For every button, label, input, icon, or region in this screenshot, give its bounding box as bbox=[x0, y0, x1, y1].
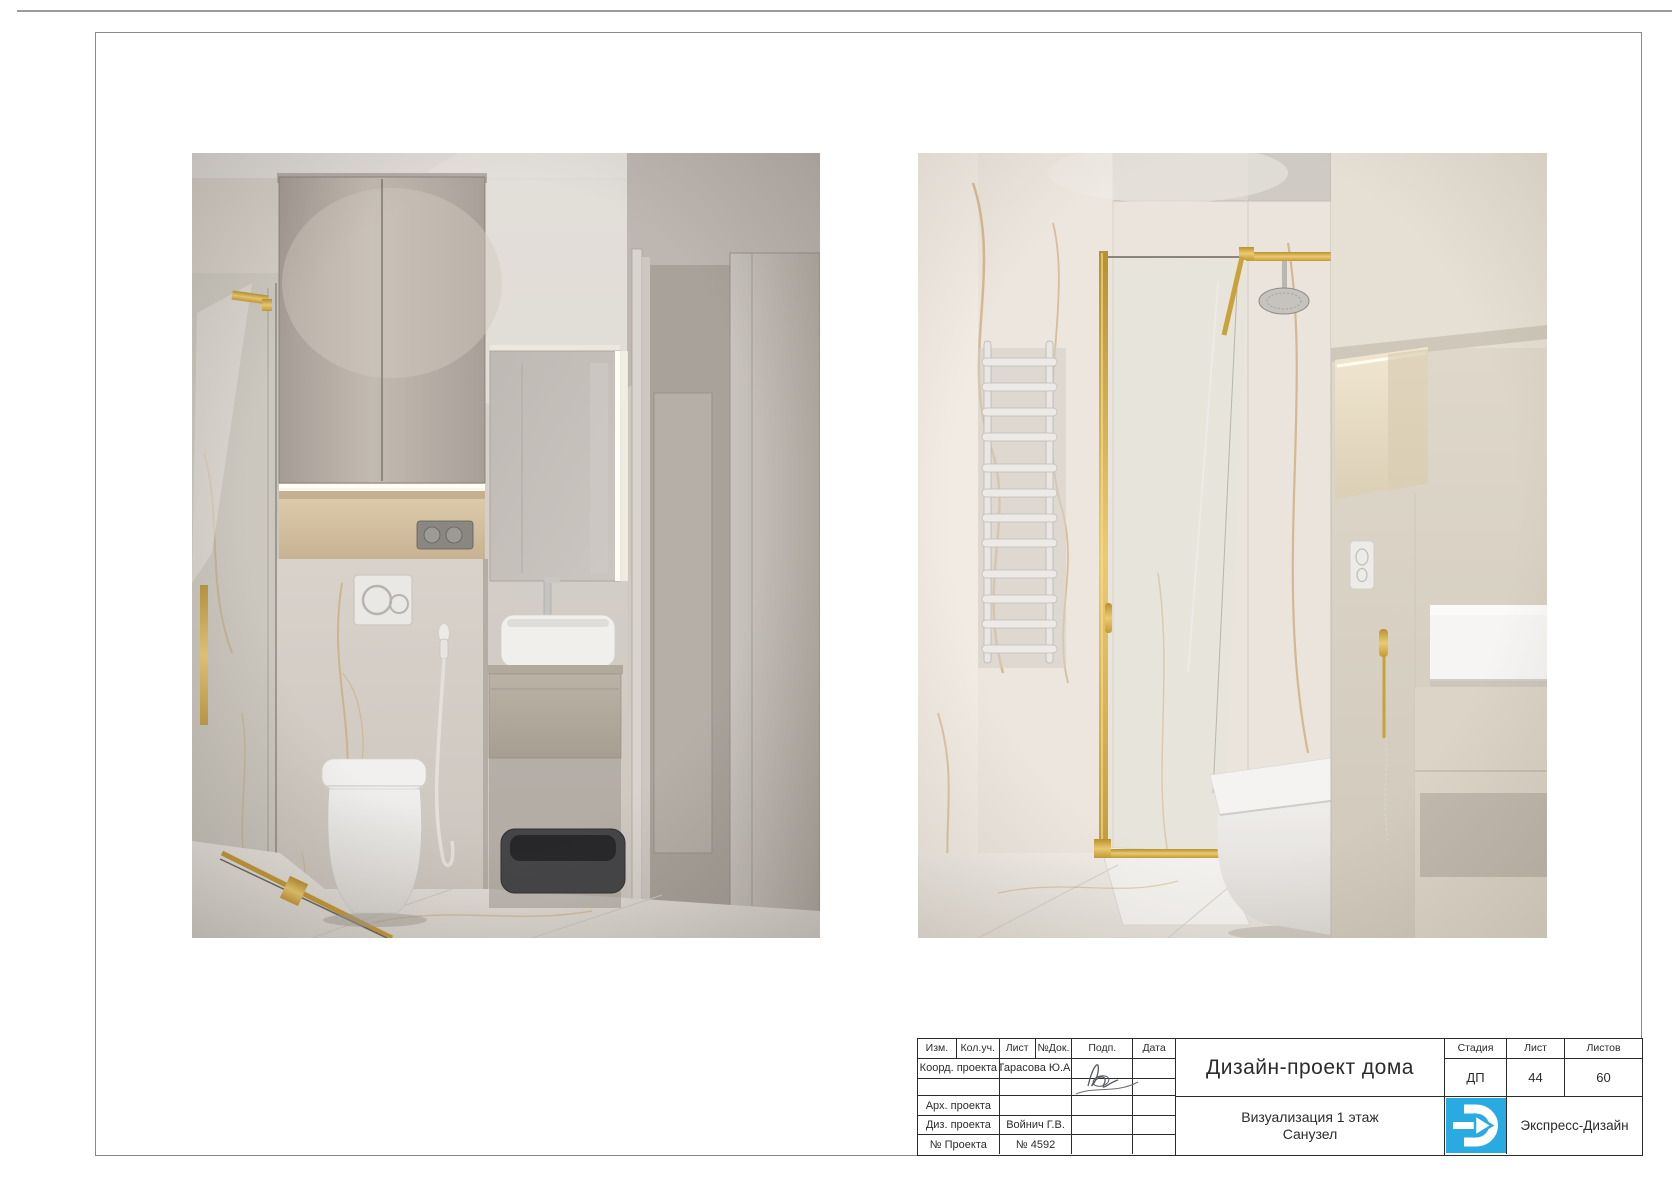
row-value-koord-proekta: Тарасова Ю.А. bbox=[1000, 1059, 1073, 1079]
sign-cell-2 bbox=[1072, 1079, 1133, 1095]
date-cell-3 bbox=[1133, 1096, 1175, 1115]
row-value-empty bbox=[1000, 1079, 1073, 1095]
sign-cell-4 bbox=[1072, 1116, 1133, 1134]
sheet-subtitle-line1: Визуализация 1 этаж bbox=[1241, 1109, 1378, 1126]
col-header-list: Лист bbox=[1000, 1039, 1036, 1058]
company-name: Экспресс-Дизайн bbox=[1507, 1097, 1642, 1154]
company-logo-cell bbox=[1445, 1097, 1507, 1154]
date-cell-5 bbox=[1133, 1135, 1175, 1154]
row-label-empty bbox=[918, 1079, 1000, 1095]
date-cell-1 bbox=[1133, 1059, 1175, 1079]
sheet-number-value: 44 bbox=[1507, 1059, 1565, 1097]
top-divider-line bbox=[17, 10, 1672, 12]
col-header-list-num: Лист bbox=[1507, 1039, 1565, 1058]
bathroom-render-left bbox=[192, 153, 820, 938]
title-block-stage-section: Стадия Лист Листов ДП 44 60 Эксп bbox=[1445, 1039, 1642, 1155]
project-title-cell: Дизайн-проект дома bbox=[1176, 1039, 1444, 1097]
sheets-total-value: 60 bbox=[1565, 1059, 1642, 1097]
col-header-koluch: Кол.уч. bbox=[957, 1039, 1000, 1058]
sign-cell-5 bbox=[1072, 1135, 1133, 1154]
row-label-arh-proekta: Арх. проекта bbox=[918, 1096, 1000, 1115]
row-label-nomer-proekta: № Проекта bbox=[918, 1135, 1000, 1154]
row-value-diz-proekta: Войнич Г.В. bbox=[1000, 1116, 1073, 1134]
sheet-subtitle-line2: Санузел bbox=[1241, 1126, 1378, 1143]
title-block-revision-section: Изм. Кол.уч. Лист №Док. Подп. Дата Коорд… bbox=[918, 1039, 1176, 1155]
express-design-logo-icon bbox=[1446, 1098, 1506, 1153]
row-label-koord-proekta: Коорд. проекта bbox=[918, 1059, 1000, 1079]
signature-cell bbox=[1072, 1059, 1133, 1079]
col-header-stadiya: Стадия bbox=[1445, 1039, 1507, 1058]
col-header-podp: Подп. bbox=[1072, 1039, 1133, 1058]
col-header-izm: Изм. bbox=[918, 1039, 957, 1058]
col-header-data: Дата bbox=[1133, 1039, 1175, 1058]
sheet-subtitle-cell: Визуализация 1 этаж Санузел bbox=[1176, 1097, 1444, 1155]
col-header-ndok: №Док. bbox=[1036, 1039, 1073, 1058]
sign-cell-3 bbox=[1072, 1096, 1133, 1115]
title-block: Изм. Кол.уч. Лист №Док. Подп. Дата Коорд… bbox=[917, 1038, 1643, 1156]
design-sheet-page: Изм. Кол.уч. Лист №Док. Подп. Дата Коорд… bbox=[0, 0, 1680, 1188]
row-value-nomer-proekta: № 4592 bbox=[1000, 1135, 1073, 1154]
date-cell-4 bbox=[1133, 1116, 1175, 1134]
row-label-diz-proekta: Диз. проекта bbox=[918, 1116, 1000, 1134]
bathroom-render-right bbox=[918, 153, 1547, 938]
stage-value: ДП bbox=[1445, 1059, 1507, 1097]
date-cell-2 bbox=[1133, 1079, 1175, 1095]
row-value-arh-proekta bbox=[1000, 1096, 1073, 1115]
project-title: Дизайн-проект дома bbox=[1206, 1056, 1414, 1080]
title-block-title-section: Дизайн-проект дома Визуализация 1 этаж С… bbox=[1176, 1039, 1445, 1155]
col-header-listov: Листов bbox=[1565, 1039, 1642, 1058]
